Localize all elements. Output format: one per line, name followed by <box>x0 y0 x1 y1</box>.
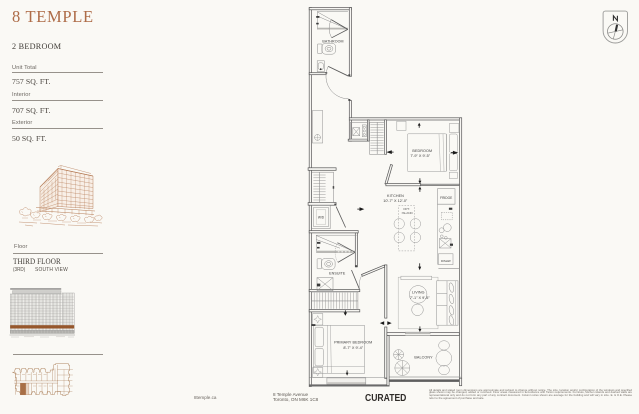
svg-text:PRIMARY BEDROOM: PRIMARY BEDROOM <box>334 340 372 344</box>
svg-text:8'-7" X 9'-4": 8'-7" X 9'-4" <box>343 346 363 350</box>
svg-text:ENSUITE: ENSUITE <box>329 271 346 275</box>
svg-text:LIVING: LIVING <box>412 291 425 295</box>
svg-text:KITCHEN: KITCHEN <box>387 194 404 198</box>
svg-text:BEDROOM: BEDROOM <box>412 149 432 153</box>
svg-text:ISLAND: ISLAND <box>402 211 414 215</box>
svg-text:7'-1" X 9'-5": 7'-1" X 9'-5" <box>410 296 430 300</box>
svg-text:DISHW: DISHW <box>441 259 451 263</box>
svg-text:BATHROOM: BATHROOM <box>322 40 343 44</box>
svg-text:FRIDGE: FRIDGE <box>440 196 452 200</box>
svg-text:BALCONY: BALCONY <box>414 356 433 360</box>
svg-text:7'-9" X 9'-5": 7'-9" X 9'-5" <box>410 154 430 158</box>
svg-text:10'-7" X 12'-0": 10'-7" X 12'-0" <box>383 199 408 203</box>
svg-text:W/D: W/D <box>318 215 325 219</box>
